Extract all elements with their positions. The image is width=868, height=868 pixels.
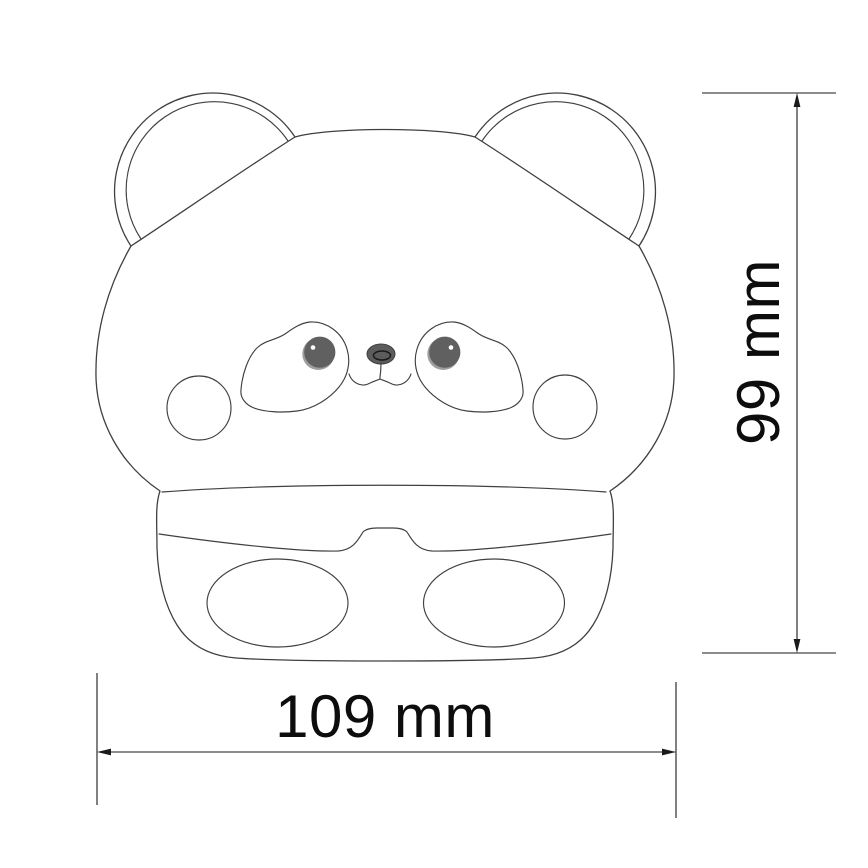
panda-figure: [96, 93, 674, 661]
right-ear-outer-line: [475, 93, 655, 246]
width-dimension-label: 109 mm: [275, 683, 495, 750]
left-eye-pupil: [304, 337, 335, 368]
technical-drawing-page: 99 mm 109 mm: [0, 0, 868, 868]
left-eye-patch: [241, 322, 349, 412]
width-arrow-left-icon: [97, 749, 111, 756]
right-eye: [427, 337, 460, 370]
left-cheek-circle: [167, 376, 231, 440]
width-dimension: 109 mm: [97, 673, 676, 818]
height-arrow-up-icon: [794, 93, 801, 107]
arms-lap-line: [159, 528, 611, 551]
right-ear-inner-line: [482, 102, 644, 239]
height-dimension-label: 99 mm: [725, 259, 792, 445]
head-body-outline: [96, 130, 674, 662]
height-arrow-down-icon: [794, 639, 801, 653]
left-ear: [115, 93, 295, 246]
left-eye-highlight: [311, 345, 316, 350]
right-ear: [475, 93, 655, 246]
right-eye-pupil: [429, 337, 460, 368]
left-ear-inner-line: [126, 102, 288, 239]
right-foot-pad: [424, 559, 565, 647]
left-foot-pad: [207, 559, 348, 647]
right-cheek-circle: [533, 375, 597, 439]
left-ear-outer-line: [115, 93, 295, 246]
philtrum-line: [380, 363, 381, 379]
width-arrow-right-icon: [662, 749, 676, 756]
panda-technical-drawing: 99 mm 109 mm: [0, 0, 868, 868]
left-eye: [302, 337, 335, 370]
right-eye-highlight: [449, 345, 454, 350]
height-dimension: 99 mm: [702, 93, 836, 653]
right-eye-patch: [415, 322, 523, 412]
nose: [367, 344, 395, 364]
head-body-seam-line: [162, 485, 606, 492]
